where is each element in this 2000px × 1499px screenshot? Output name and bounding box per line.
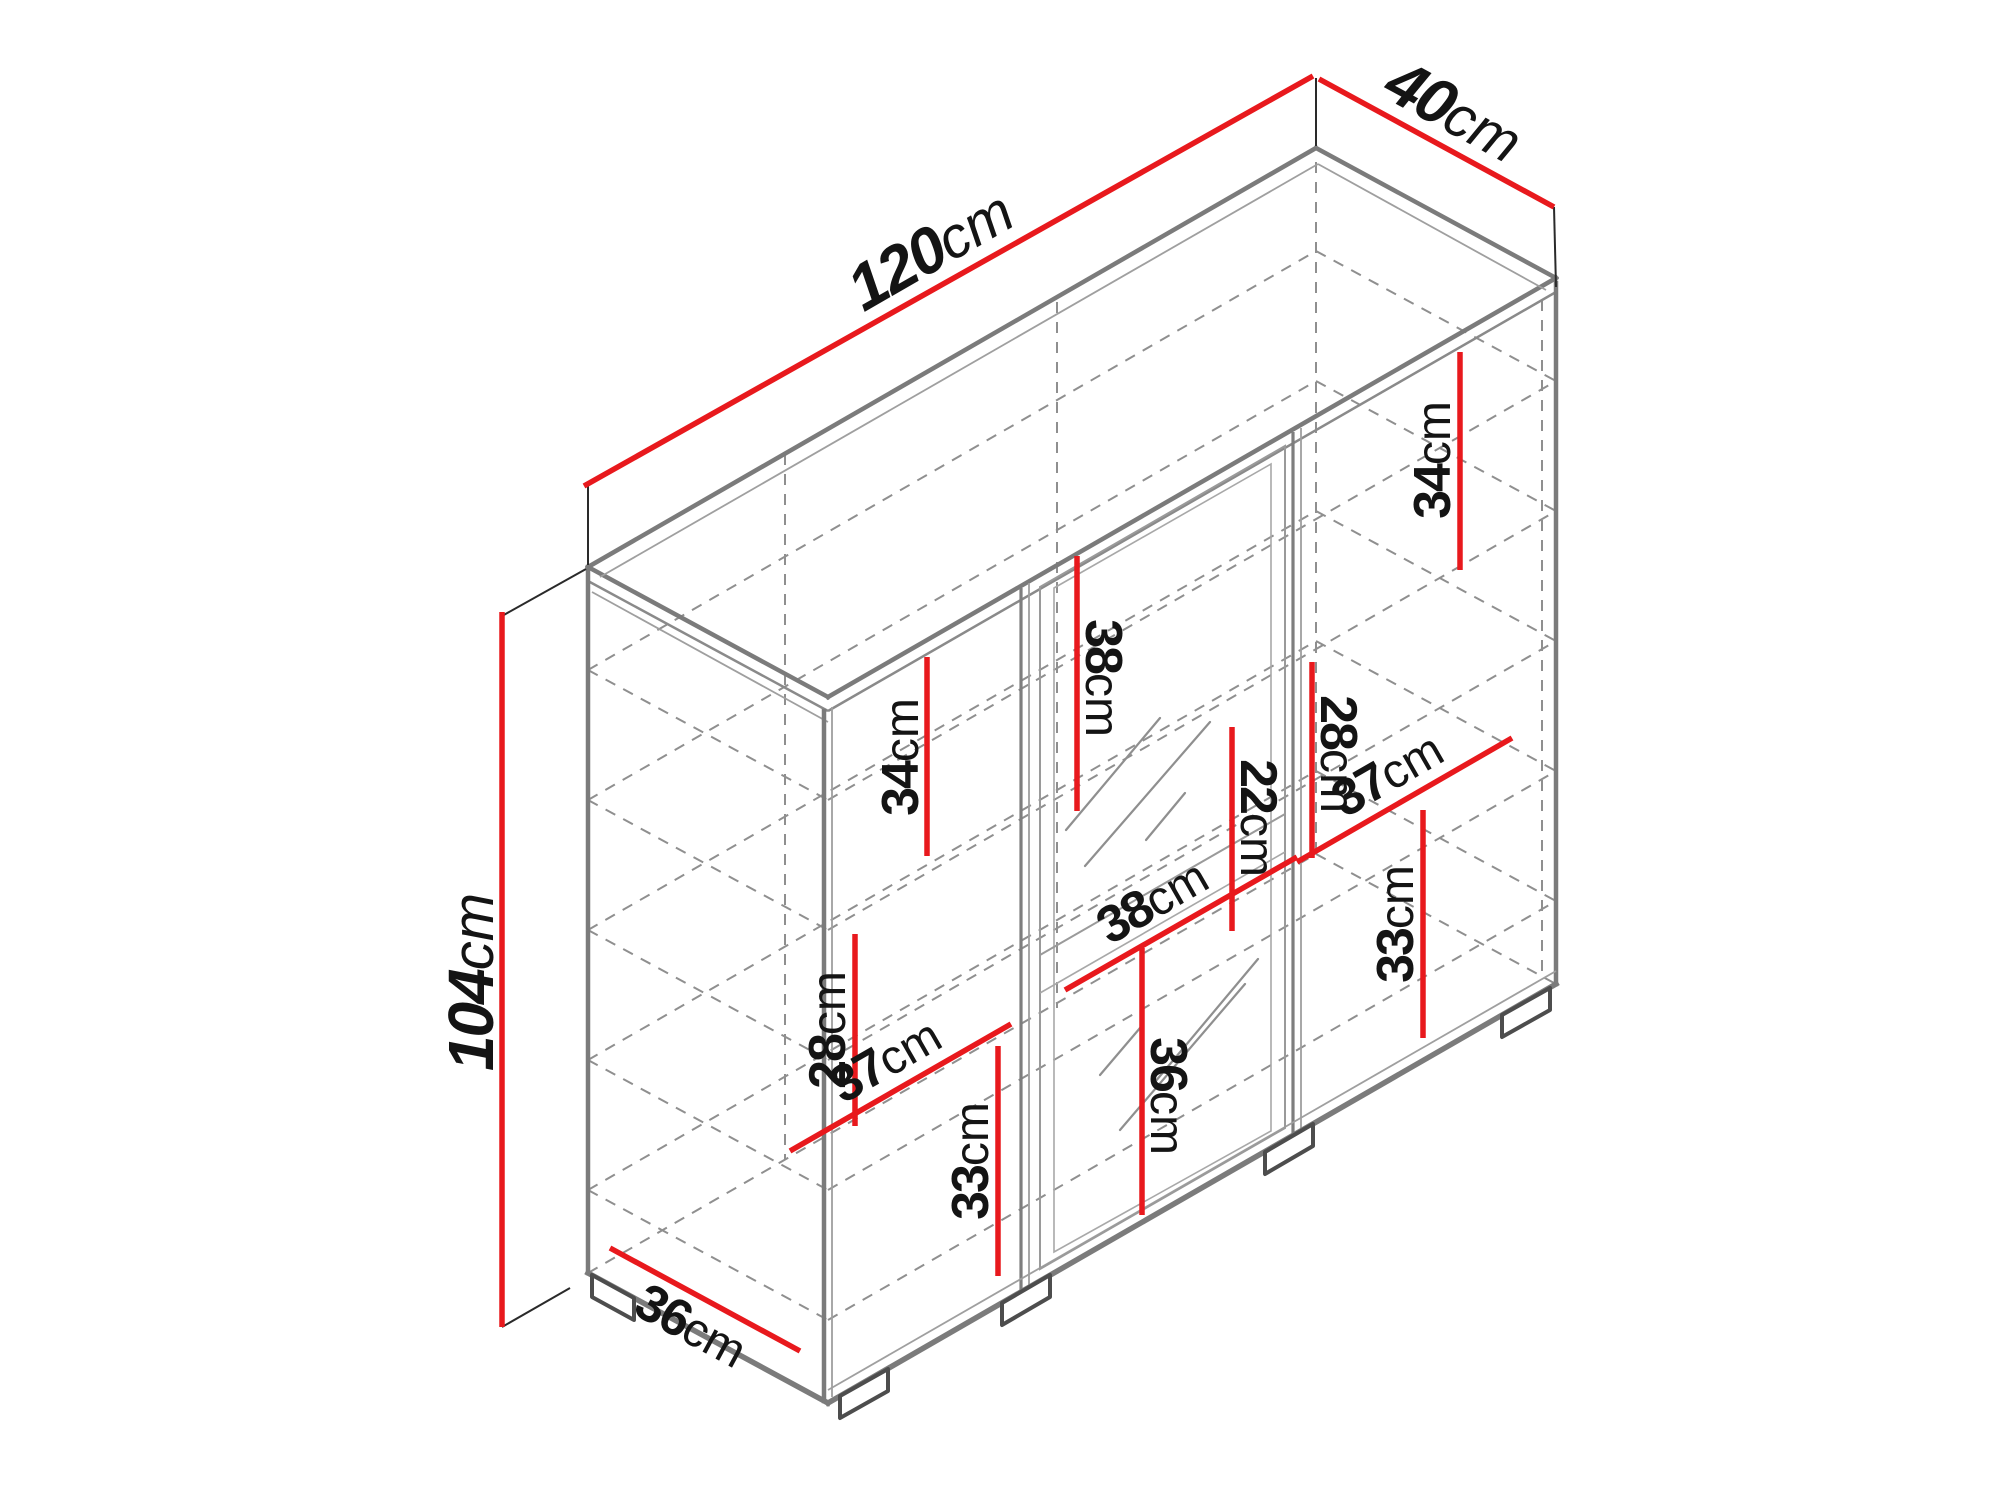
shelf-dashed-edge — [588, 511, 1316, 930]
cabinet-dimension-diagram: 120cm 40cm 104cm 34cm 34cm 38cm 22cm 28c… — [0, 0, 2000, 1499]
dim-label-center-shelf-gap: 22cm — [1229, 759, 1287, 877]
cabinet-foot — [1265, 1124, 1313, 1174]
glass-shine — [1085, 722, 1210, 866]
top-face-edge — [1316, 148, 1556, 278]
dim-label-side-bottom-depth: 36cm — [625, 1272, 756, 1379]
top-slab-band — [588, 581, 828, 711]
dim-label-right-bottom-gap: 33cm — [1367, 865, 1425, 983]
dim-label-center-bottom-gap: 36cm — [1139, 1037, 1197, 1155]
dimension-labels: 120cm 40cm 104cm 34cm 34cm 38cm 22cm 28c… — [435, 44, 1535, 1380]
shelf-dashed-edge — [588, 670, 828, 800]
top-slab-band — [592, 592, 828, 722]
dim-label-right-top-gap: 34cm — [1404, 401, 1462, 519]
extension-line — [502, 1288, 570, 1327]
diagram-page: 120cm 40cm 104cm 34cm 34cm 38cm 22cm 28c… — [0, 0, 2000, 1499]
shelf-dashed-edge — [588, 800, 828, 930]
dim-label-depth: 40cm — [1372, 44, 1535, 177]
cabinet-foot — [840, 1369, 888, 1418]
top-face-edge — [588, 567, 828, 697]
dim-label-left-top-gap: 34cm — [872, 698, 930, 816]
cabinet-foot — [592, 1275, 634, 1320]
dimension-lines — [502, 76, 1554, 1351]
shelf-dashed-edge — [828, 641, 1556, 1060]
dim-line-width — [584, 76, 1313, 486]
shelf-dashed-edge — [588, 930, 828, 1060]
dim-label-height: 104cm — [435, 893, 507, 1071]
hidden-bottom-edge — [1316, 854, 1556, 984]
cabinet-foot — [1002, 1275, 1050, 1325]
shelf-dashed-edge — [588, 251, 1316, 670]
glass-shine — [1100, 1028, 1140, 1075]
shelf-dashed-edge — [588, 1060, 828, 1190]
shelf-dashed-edge — [588, 641, 1316, 1060]
dim-label-width: 120cm — [835, 173, 1025, 324]
cabinet-foot — [1502, 988, 1550, 1037]
dim-label-center-top-gap: 38cm — [1074, 619, 1132, 737]
dim-label-left-bottom-gap: 33cm — [942, 1102, 1000, 1220]
glass-shine — [1146, 793, 1185, 840]
shelf-dashed-edge — [1316, 511, 1556, 641]
shelf-dashed-edge — [588, 381, 1316, 800]
extension-line — [502, 569, 586, 616]
